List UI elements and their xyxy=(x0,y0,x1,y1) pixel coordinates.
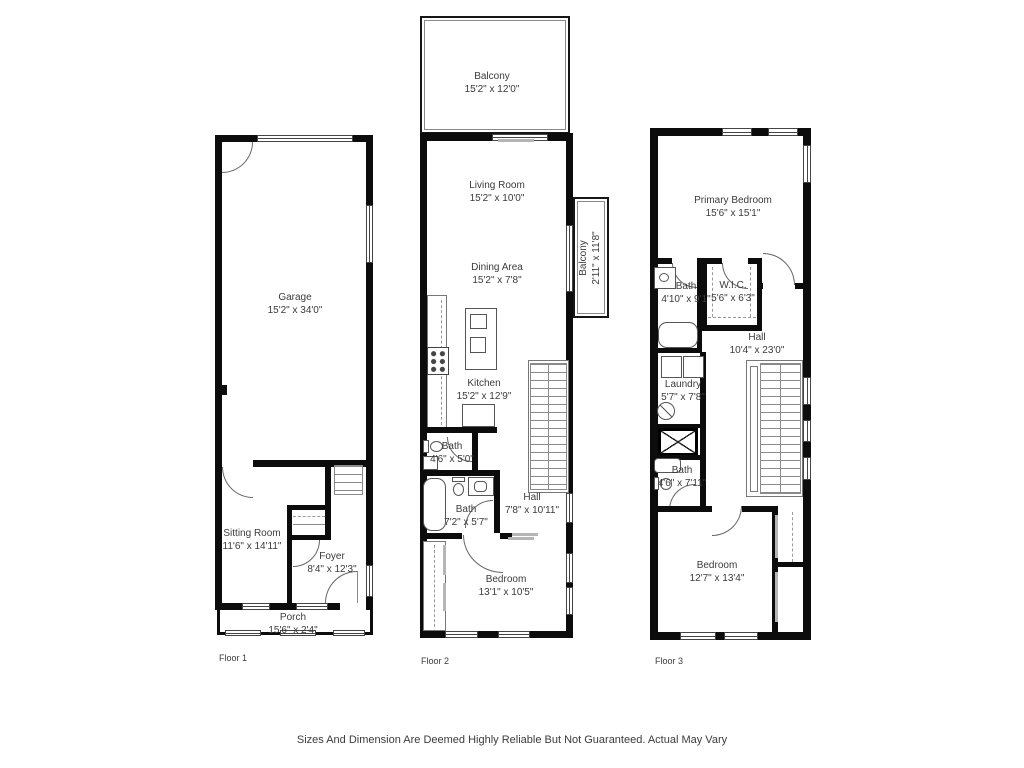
garage-door xyxy=(257,135,353,142)
closet-rod xyxy=(792,512,793,562)
window xyxy=(722,128,752,136)
door-arc xyxy=(222,467,253,498)
room-dims: 15'6" x 15'1" xyxy=(694,207,772,220)
room-name: Balcony xyxy=(577,231,590,284)
sliding-door-panel xyxy=(443,545,446,575)
disclaimer-text: Sizes And Dimension Are Deemed Highly Re… xyxy=(297,734,727,746)
stair-rail xyxy=(780,363,781,494)
window xyxy=(366,565,373,597)
room-dims: 15'2" x 10'0" xyxy=(469,192,525,205)
room-label-sitting-room: Sitting Room 11'6" x 14'11" xyxy=(223,527,282,553)
room-label-dining-area: Dining Area 15'2" x 7'8" xyxy=(471,261,523,287)
room-name: Bath xyxy=(661,280,710,293)
room-label-bedroom: Bedroom 13'1" x 10'5" xyxy=(479,573,534,599)
sliding-door-panel xyxy=(775,515,778,558)
room-dims: 2'11" x 11'8" xyxy=(590,231,603,284)
sliding-door-panel xyxy=(443,583,446,611)
room-name: Laundry xyxy=(661,378,705,391)
wall xyxy=(752,128,768,136)
room-name: Bedroom xyxy=(479,573,534,586)
wall xyxy=(420,631,445,638)
room-label-foyer: Foyer 8'4" x 12'3" xyxy=(307,550,356,576)
room-name: W.I.C. xyxy=(711,279,755,292)
wall xyxy=(566,133,573,225)
wall xyxy=(217,385,227,395)
wall xyxy=(366,603,373,610)
wall xyxy=(421,470,500,476)
wall xyxy=(478,631,498,638)
wall xyxy=(366,263,373,565)
floorplan-canvas: Garage 15'2" x 34'0" Sitting Room 11'6" … xyxy=(0,0,1024,768)
window xyxy=(445,631,478,638)
room-label-bath-lower: Bath 4'6" x 7'11" xyxy=(658,464,707,490)
water-heater-icon xyxy=(657,402,675,420)
room-dims: 5'7" x 7'8" xyxy=(661,391,705,404)
room-label-hall: Hall 10'4" x 23'0" xyxy=(730,331,785,357)
bathtub-icon xyxy=(423,478,446,531)
room-dims: 15'6" x 2'4" xyxy=(268,624,317,637)
floor-2-caption: Floor 2 xyxy=(421,656,449,666)
stair-rail xyxy=(750,366,758,492)
room-name: Kitchen xyxy=(457,377,512,390)
window xyxy=(724,632,758,640)
closet-rod xyxy=(434,545,435,627)
room-label-bedroom: Bedroom 12'7" x 13'4" xyxy=(690,559,745,585)
wall xyxy=(803,480,811,640)
wall xyxy=(287,540,292,607)
wall xyxy=(650,258,672,264)
wall xyxy=(530,631,573,638)
window xyxy=(296,603,328,610)
door-arc xyxy=(712,506,742,536)
mechanical-chase-icon xyxy=(658,428,698,456)
closet-rod xyxy=(293,516,325,517)
room-dims: 10'4" x 23'0" xyxy=(730,344,785,357)
wall xyxy=(758,632,811,640)
wall xyxy=(650,348,702,353)
room-label-bath-small: Bath 4'6" x 5'0" xyxy=(430,440,474,466)
room-dims: 5'6" x 6'3" xyxy=(711,292,755,305)
room-label-balcony-top: Balcony 15'2" x 12'0" xyxy=(465,70,520,96)
room-name: Hall xyxy=(730,331,785,344)
door-leaf xyxy=(357,571,358,603)
room-name: Sitting Room xyxy=(223,527,282,540)
room-dims: 4'10" x 9'1" xyxy=(661,293,710,306)
room-label-primary-bedroom: Primary Bedroom 15'6" x 15'1" xyxy=(694,194,772,220)
wall xyxy=(270,603,296,610)
floorplan-page: { "disclaimer": "Sizes And Dimension Are… xyxy=(0,0,1024,768)
wall xyxy=(803,183,811,377)
room-dims: 7'8" x 10'11" xyxy=(505,504,559,517)
room-label-balcony-side: Balcony 2'11" x 11'8" xyxy=(577,231,603,284)
sliding-door-panel xyxy=(775,572,778,622)
room-dims: 12'7" x 13'4" xyxy=(690,572,745,585)
wall xyxy=(215,135,222,610)
sink-icon xyxy=(474,481,487,492)
toilet-icon xyxy=(453,483,464,496)
room-name: Porch xyxy=(268,611,317,624)
wall xyxy=(795,283,811,289)
room-label-living-room: Living Room 15'2" x 10'0" xyxy=(469,179,525,205)
toilet-icon xyxy=(423,440,429,453)
window xyxy=(566,553,573,583)
room-name: Bath xyxy=(430,440,474,453)
wall xyxy=(716,632,724,640)
floor-3-caption: Floor 3 xyxy=(655,656,683,666)
wall xyxy=(215,603,242,610)
stair-rail xyxy=(548,363,549,490)
room-name: Balcony xyxy=(465,70,520,83)
room-name: Bath xyxy=(444,503,488,516)
window xyxy=(242,603,270,610)
wall xyxy=(650,128,722,136)
room-dims: 4'6" x 7'11" xyxy=(658,477,707,490)
room-dims: 8'4" x 12'3" xyxy=(307,563,356,576)
room-name: Dining Area xyxy=(471,261,523,274)
room-dims: 7'2" x 5'7" xyxy=(444,516,488,529)
room-name: Bedroom xyxy=(690,559,745,572)
closet-shelf xyxy=(293,524,325,525)
door-arc xyxy=(763,253,795,285)
sink-icon xyxy=(470,314,487,329)
room-label-hall: Hall 7'8" x 10'11" xyxy=(505,491,559,517)
wall xyxy=(650,128,658,640)
window xyxy=(803,420,811,442)
bathtub-icon xyxy=(658,322,698,348)
room-dims: 4'6" x 5'0" xyxy=(430,453,474,466)
wall xyxy=(566,523,573,553)
closet-rod xyxy=(708,317,756,318)
wall xyxy=(803,442,811,457)
staircase xyxy=(334,465,363,495)
window xyxy=(680,632,716,640)
room-dims: 15'2" x 12'0" xyxy=(465,83,520,96)
room-label-kitchen: Kitchen 15'2" x 12'9" xyxy=(457,377,512,403)
wall xyxy=(325,460,331,540)
room-label-bath-large: Bath 7'2" x 5'7" xyxy=(444,503,488,529)
wall xyxy=(803,405,811,420)
dryer-icon xyxy=(683,356,704,378)
wall xyxy=(421,427,497,433)
room-label-laundry: Laundry 5'7" x 7'8" xyxy=(661,378,705,404)
window xyxy=(803,145,811,183)
wall xyxy=(757,258,762,331)
window xyxy=(498,631,530,638)
pocket-door xyxy=(512,533,538,536)
window xyxy=(803,377,811,405)
window xyxy=(366,205,373,263)
wall xyxy=(287,505,325,510)
wall xyxy=(772,562,803,567)
toilet-icon xyxy=(452,477,465,482)
wall xyxy=(420,133,492,141)
room-label-garage: Garage 15'2" x 34'0" xyxy=(268,291,323,317)
porch-window xyxy=(225,630,261,636)
room-dims: 13'1" x 10'5" xyxy=(479,586,534,599)
counter-appliance xyxy=(462,404,495,427)
room-name: Primary Bedroom xyxy=(694,194,772,207)
room-dims: 15'2" x 12'9" xyxy=(457,390,512,403)
room-label-porch: Porch 15'6" x 2'4" xyxy=(268,611,317,637)
wall xyxy=(494,476,500,533)
room-dims: 15'2" x 7'8" xyxy=(471,274,523,287)
washer-icon xyxy=(661,356,682,378)
balcony-door xyxy=(566,225,573,292)
wall xyxy=(650,506,712,512)
room-dims: 11'6" x 14'11" xyxy=(223,540,282,553)
room-name: Garage xyxy=(268,291,323,304)
room-name: Living Room xyxy=(469,179,525,192)
floor-1-caption: Floor 1 xyxy=(219,653,247,663)
room-name: Bath xyxy=(658,464,707,477)
room-dims: 15'2" x 34'0" xyxy=(268,304,323,317)
door-arc xyxy=(222,142,253,173)
cooktop-icon xyxy=(470,337,486,353)
wall xyxy=(803,128,811,145)
room-name: Hall xyxy=(505,491,559,504)
wall xyxy=(366,135,373,205)
window xyxy=(768,128,798,136)
wall xyxy=(421,533,462,539)
window xyxy=(803,457,811,480)
room-label-bath-upper: Bath 4'10" x 9'1" xyxy=(661,280,710,306)
door-arc xyxy=(463,535,503,573)
window xyxy=(566,587,573,615)
porch-window xyxy=(333,630,365,636)
wall xyxy=(215,135,257,142)
window xyxy=(566,493,573,523)
pocket-door xyxy=(508,537,534,540)
wall xyxy=(650,632,680,640)
room-name: Foyer xyxy=(307,550,356,563)
sliding-door-panel xyxy=(498,139,534,142)
wall xyxy=(328,603,340,610)
stove-icon xyxy=(427,347,449,375)
room-label-wic: W.I.C. 5'6" x 6'3" xyxy=(711,279,755,305)
